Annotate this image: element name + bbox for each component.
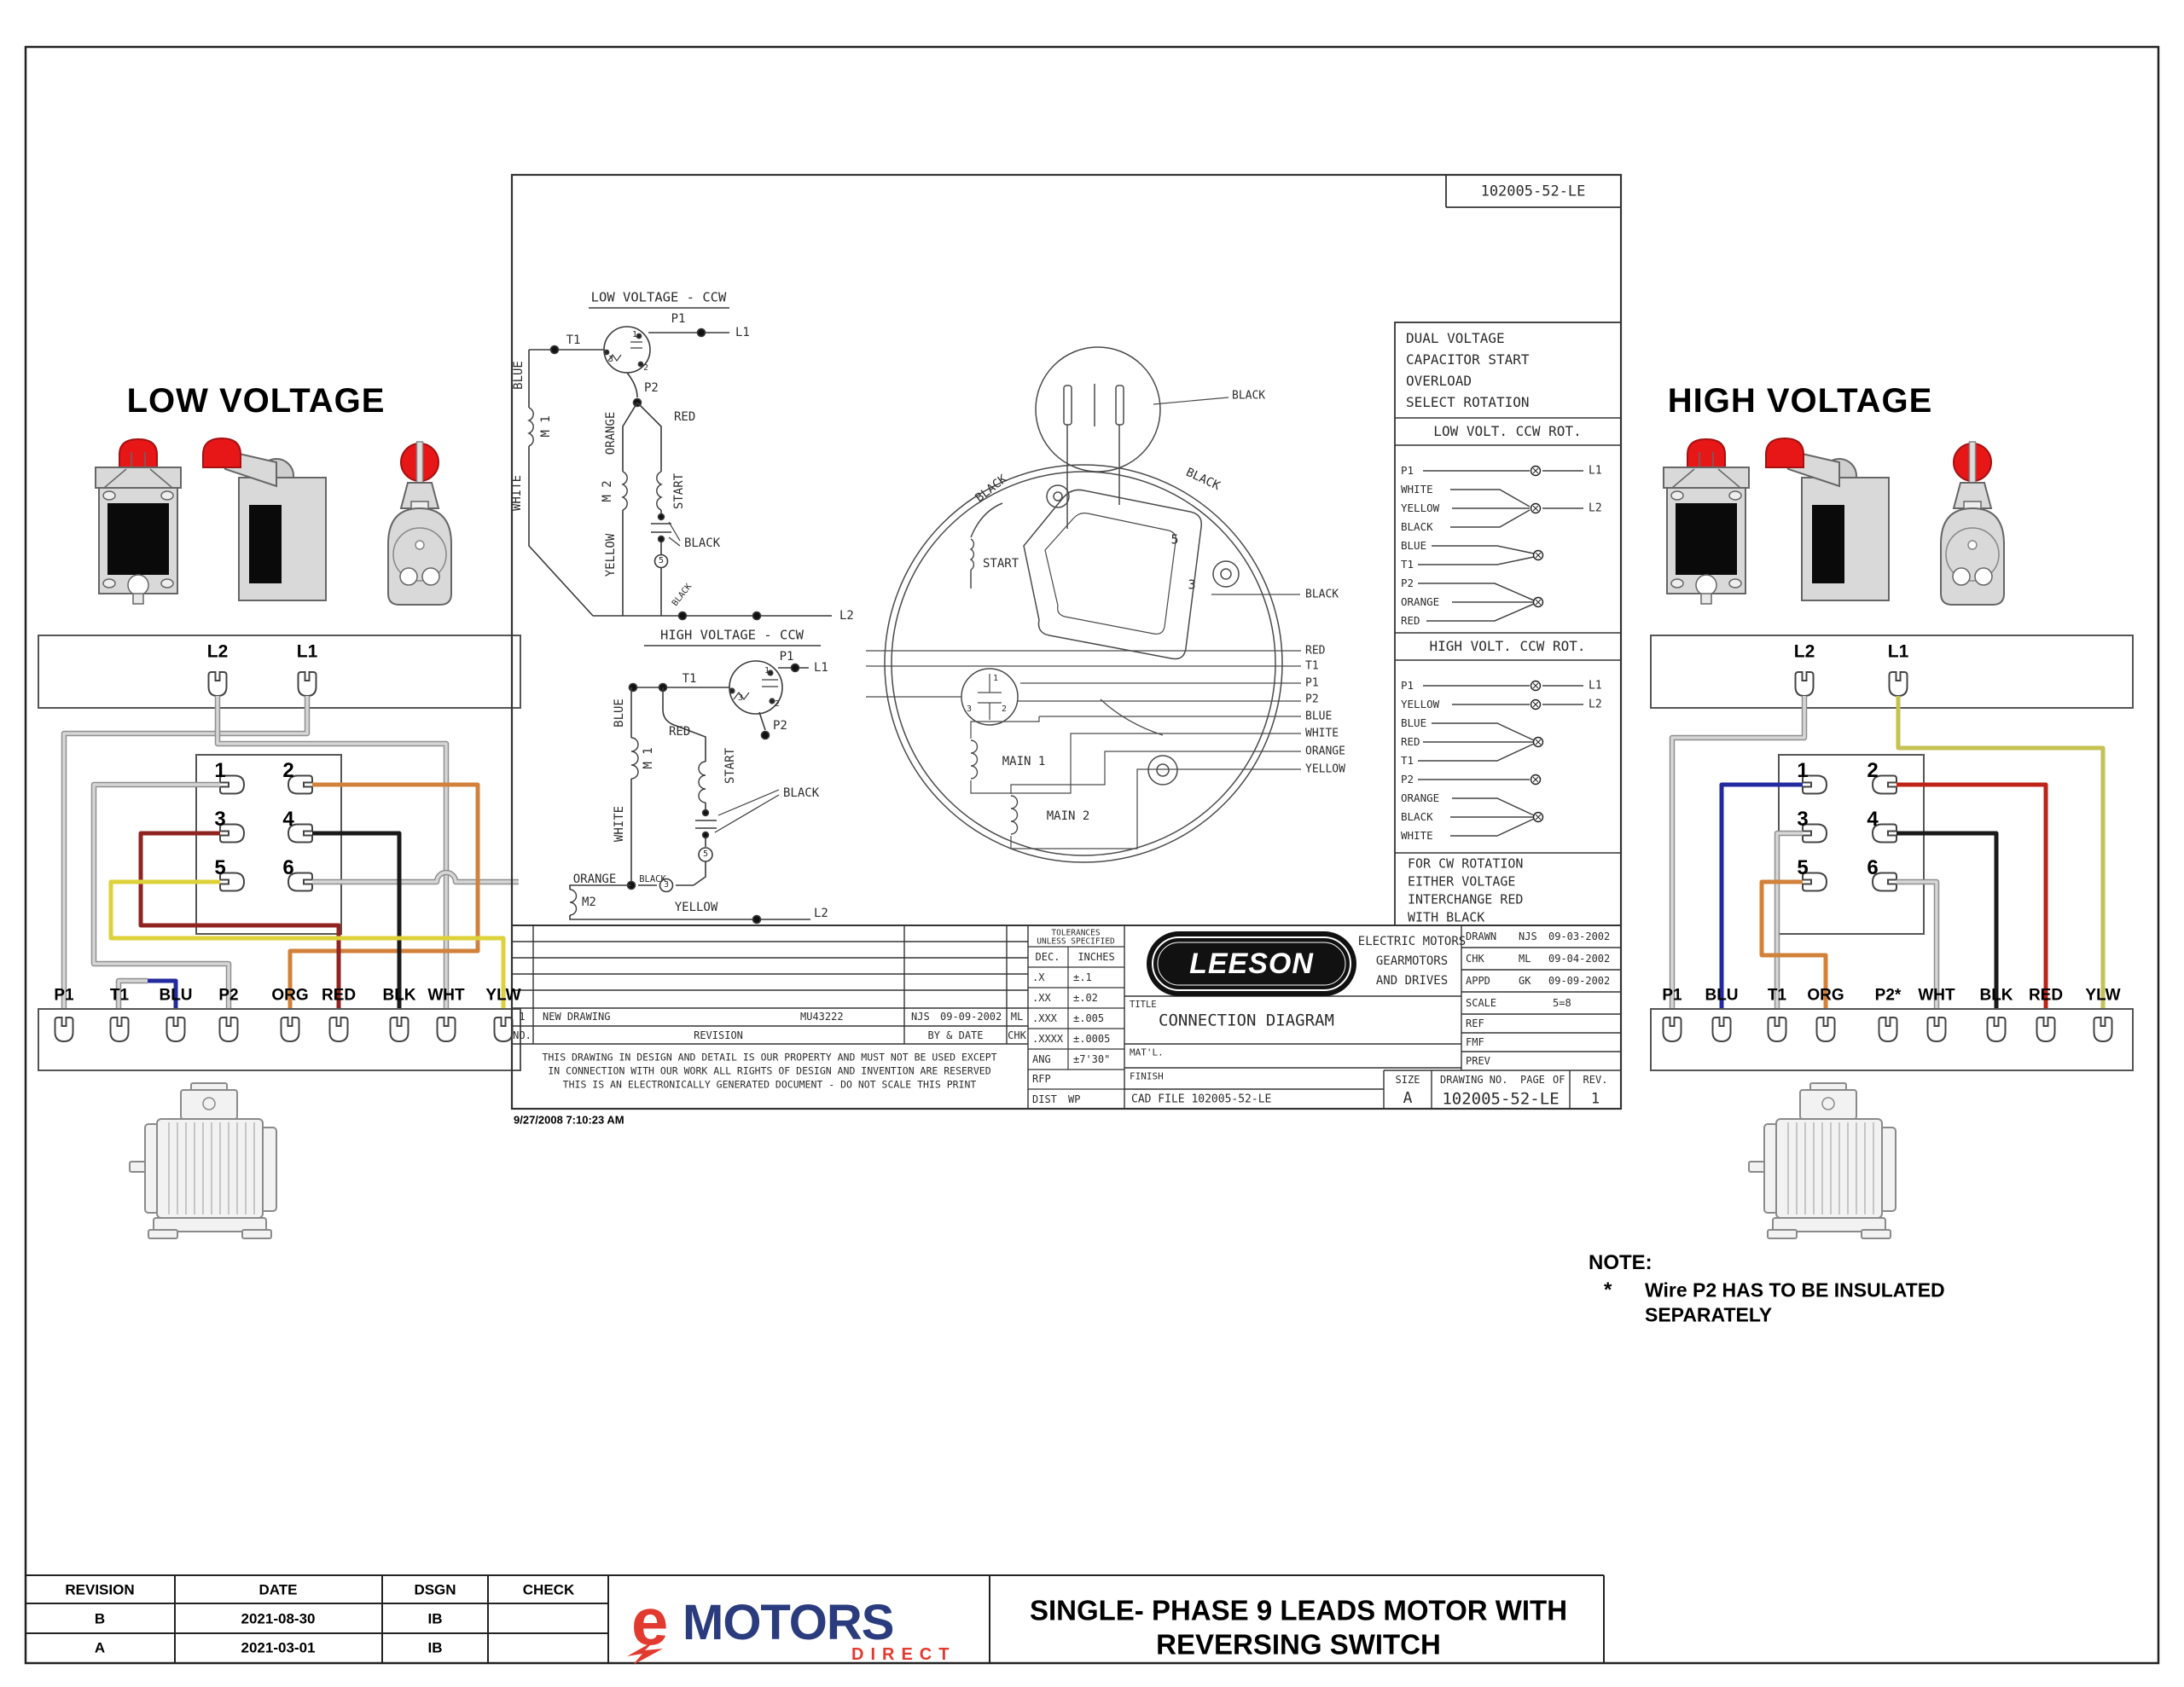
info-line-4: SELECT ROTATION — [1406, 396, 1530, 409]
right-sw-4: 4 — [1867, 809, 1878, 830]
appd-date: 09-09-2002 — [1548, 976, 1610, 986]
fmf-label: FMF — [1466, 1037, 1484, 1047]
sch-high-m2: M2 — [582, 896, 596, 908]
right-sw-1: 1 — [1797, 761, 1808, 781]
of-label: OF — [1553, 1075, 1565, 1085]
drawing-title-line1: SINGLE- PHASE 9 LEADS MOTOR WITH — [1030, 1597, 1567, 1625]
cap-n3: 3 — [967, 705, 972, 714]
tol-xx-label: .XX — [1032, 993, 1051, 1003]
tol-inches: INCHES — [1077, 952, 1114, 962]
ftr-hdr-revision: REVISION — [65, 1583, 134, 1597]
high-lead-5: P2 — [1401, 774, 1414, 786]
right-sw-6: 6 — [1867, 858, 1878, 878]
high-voltage-wiring — [1651, 635, 2133, 1238]
revrow-no: 1 — [519, 1012, 525, 1022]
low-lead-2: YELLOW — [1401, 503, 1439, 514]
title-label: TITLE — [1130, 1000, 1157, 1010]
left-sw-3: 3 — [214, 809, 225, 830]
sch-high-l1: L1 — [814, 662, 828, 674]
matl-label: MAT'L. — [1130, 1048, 1164, 1058]
sch-low-n5: 5 — [659, 557, 664, 565]
circle-main2: MAIN 2 — [1047, 810, 1090, 822]
prev-label: PREV — [1466, 1056, 1490, 1066]
left-lead-ylw: YLW — [485, 988, 520, 1004]
low-lead-3: BLACK — [1401, 522, 1433, 533]
sch-high-title: HIGH VOLTAGE - CCW — [660, 629, 804, 642]
sch-high-black-small: BLACK — [639, 875, 666, 884]
sch-low-start: START — [673, 473, 685, 509]
right-sw-5: 5 — [1797, 858, 1808, 878]
info-line-1: DUAL VOLTAGE — [1406, 332, 1505, 345]
sch-low-l1: L1 — [735, 327, 750, 339]
leeson-logo-text: LEESON — [1189, 949, 1314, 978]
left-l1-label: L1 — [297, 643, 318, 661]
low-lead-1: WHITE — [1401, 484, 1433, 496]
brand-line-2: GEARMOTORS — [1376, 955, 1448, 967]
right-lead-org: ORG — [1807, 988, 1844, 1004]
chk-label: CHK — [1466, 954, 1484, 964]
cw-note-1: FOR CW ROTATION — [1408, 858, 1523, 871]
cap-n2: 2 — [1002, 705, 1007, 714]
high-l2: L2 — [1589, 699, 1602, 710]
high-rot-header: HIGH VOLT. CCW ROT. — [1429, 640, 1585, 653]
cap-n1: 1 — [993, 675, 998, 683]
sch-high-black: BLACK — [783, 787, 819, 799]
left-sw-2: 2 — [282, 761, 293, 781]
sch-low-red: RED — [674, 411, 695, 423]
sch-high-n2: 2 — [775, 700, 780, 709]
sch-low-l2: L2 — [839, 610, 854, 622]
sch-low-black: BLACK — [684, 537, 720, 549]
right-lead-red: RED — [2029, 988, 2063, 1004]
sch-low-white: WHITE — [511, 475, 523, 511]
revrow-date: 09-09-2002 — [940, 1012, 1002, 1022]
ftr-hdr-check: CHECK — [523, 1583, 574, 1597]
low-lead-4: BLUE — [1401, 541, 1426, 552]
circle-n5: 5 — [1170, 534, 1178, 547]
left-lead-blu: BLU — [159, 988, 192, 1004]
stack-blue: BLUE — [1305, 711, 1332, 722]
ref-label: REF — [1466, 1018, 1484, 1029]
sch-high-n3b: 3 — [664, 881, 669, 890]
tol-ang-value: ±7'30" — [1073, 1054, 1110, 1064]
right-lead-blk: BLK — [1979, 988, 2013, 1004]
high-voltage-switch-icons — [1664, 438, 2004, 605]
ftr-row1-dsgn: IB — [428, 1612, 443, 1626]
revhdr-chk: CHK — [1008, 1030, 1026, 1041]
tol-xxxx-value: ±.0005 — [1073, 1034, 1110, 1044]
revrow-by: NJS — [911, 1012, 930, 1022]
left-sw-1: 1 — [214, 761, 225, 781]
wiring-diagram-page: LOW VOLTAGE HIGH VOLTAGE L2 L1 1 2 3 4 5… — [0, 0, 2184, 1687]
print-timestamp: 9/27/2008 7:10:23 AM — [514, 1115, 624, 1126]
left-sw-6: 6 — [282, 858, 293, 878]
brand-direct: DIRECT — [851, 1646, 955, 1663]
high-lead-2: BLUE — [1401, 718, 1426, 729]
note-heading: NOTE: — [1589, 1253, 1653, 1273]
left-lead-blk: BLK — [382, 988, 415, 1004]
circle-main1: MAIN 1 — [1002, 756, 1046, 768]
low-l2: L2 — [1589, 503, 1602, 514]
sch-high-white: WHITE — [613, 806, 625, 842]
low-lead-5: T1 — [1401, 559, 1414, 571]
brand-motors: MOTORS — [682, 1598, 894, 1648]
high-lead-3: RED — [1401, 737, 1420, 748]
circle-black-top: BLACK — [1232, 391, 1265, 402]
sch-low-n1: 1 — [632, 331, 637, 339]
stack-p2: P2 — [1305, 694, 1319, 705]
note-line1: Wire P2 HAS TO BE INSULATED — [1645, 1281, 1945, 1301]
high-l1: L1 — [1589, 681, 1602, 692]
left-lead-red: RED — [322, 988, 356, 1004]
low-lead-6: P2 — [1401, 578, 1414, 589]
revrow-code: MU43222 — [800, 1012, 844, 1022]
dwg-label: DRAWING NO. — [1440, 1075, 1507, 1085]
high-lead-4: T1 — [1401, 756, 1414, 767]
tol-x-label: .X — [1032, 972, 1044, 983]
right-lead-wht: WHT — [1918, 988, 1955, 1004]
chk-by: ML — [1519, 954, 1531, 964]
drawing-title-line2: REVERSING SWITCH — [1156, 1631, 1441, 1659]
left-lead-p2: P2 — [218, 988, 238, 1004]
sch-high-red: RED — [669, 726, 690, 738]
lightning-bolt-icon — [627, 1641, 666, 1667]
low-lead-8: RED — [1401, 616, 1420, 627]
cad-file: CAD FILE 102005-52-LE — [1131, 1094, 1271, 1105]
high-lead-1: YELLOW — [1401, 699, 1439, 710]
appd-label: APPD — [1466, 976, 1490, 986]
revhdr-bydate: BY & DATE — [927, 1030, 983, 1041]
sch-high-blue: BLUE — [613, 699, 625, 728]
right-lead-ylw: YLW — [2085, 988, 2120, 1004]
note-line2: SEPARATELY — [1645, 1306, 1772, 1325]
rev-label: REV. — [1583, 1075, 1608, 1085]
ftr-hdr-date: DATE — [258, 1583, 297, 1597]
high-lead-7: BLACK — [1401, 812, 1433, 823]
left-lead-t1: T1 — [110, 988, 129, 1004]
drawn-label: DRAWN — [1466, 931, 1496, 942]
tol-dec: DEC. — [1036, 952, 1060, 962]
tol-x-value: ±.1 — [1073, 972, 1092, 983]
right-lead-t1: T1 — [1768, 988, 1786, 1004]
left-lead-org: ORG — [271, 988, 308, 1004]
left-l2-label: L2 — [207, 643, 229, 661]
title-value: CONNECTION DIAGRAM — [1159, 1013, 1334, 1029]
sch-high-p1: P1 — [780, 651, 794, 663]
dist-value: WP — [1068, 1094, 1080, 1104]
tol-header-2: UNLESS SPECIFIED — [1037, 937, 1115, 946]
right-l1-label: L1 — [1888, 643, 1909, 661]
low-lead-7: ORANGE — [1401, 597, 1439, 608]
low-rot-header: LOW VOLT. CCW ROT. — [1433, 425, 1581, 438]
right-lead-p1: P1 — [1662, 988, 1682, 1004]
schematic-low-ccw — [529, 308, 832, 620]
low-voltage-switch-icons — [96, 438, 451, 605]
page-label: PAGE — [1520, 1075, 1545, 1085]
sch-high-t1: T1 — [682, 673, 697, 685]
left-lead-wht: WHT — [427, 988, 464, 1004]
revrow-chk: ML — [1011, 1012, 1023, 1022]
cw-note-3: INTERCHANGE RED — [1408, 894, 1523, 907]
doc-number: 102005-52-LE — [1481, 185, 1586, 200]
circle-n3: 3 — [1188, 579, 1195, 592]
brand-line-3: AND DRIVES — [1376, 975, 1448, 987]
right-l2-label: L2 — [1794, 643, 1815, 661]
stack-p1: P1 — [1305, 678, 1319, 689]
appd-by: GK — [1519, 976, 1531, 986]
dwg-number: 102005-52-LE — [1442, 1092, 1559, 1108]
rev-value: 1 — [1591, 1093, 1600, 1107]
disclaimer-1: THIS DRAWING IN DESIGN AND DETAIL IS OUR… — [542, 1052, 996, 1063]
info-line-2: CAPACITOR START — [1406, 353, 1530, 367]
ftr-row2-rev: A — [95, 1641, 105, 1655]
chk-date: 09-04-2002 — [1548, 954, 1610, 964]
sch-low-yellow: YELLOW — [605, 534, 617, 577]
left-sw-5: 5 — [214, 858, 225, 878]
brand-line-1: ELECTRIC MOTORS — [1358, 936, 1466, 948]
sch-high-orange: ORANGE — [573, 873, 617, 885]
sch-low-m1: M 1 — [540, 415, 552, 437]
tol-xxxx-label: .XXXX — [1032, 1034, 1063, 1044]
disclaimer-3: THIS IS AN ELECTRONICALLY GENERATED DOCU… — [563, 1080, 977, 1090]
left-lead-p1: P1 — [54, 988, 73, 1004]
rfp-label: RFP — [1032, 1074, 1051, 1084]
scale-value: 5=8 — [1553, 998, 1571, 1008]
sch-high-n1: 1 — [764, 667, 770, 675]
stack-white: WHITE — [1305, 728, 1339, 739]
sch-high-n5: 5 — [703, 850, 708, 859]
ftr-row2-dsgn: IB — [428, 1641, 443, 1655]
sch-low-blue: BLUE — [513, 361, 525, 390]
tol-xx-value: ±.02 — [1073, 993, 1098, 1003]
disclaimer-2: IN CONNECTION WITH OUR WORK ALL RIGHTS O… — [548, 1066, 990, 1076]
sch-low-title: LOW VOLTAGE - CCW — [591, 291, 727, 304]
sch-high-l2: L2 — [814, 907, 828, 919]
stack-orange: ORANGE — [1305, 746, 1345, 757]
low-l1: L1 — [1589, 466, 1602, 477]
note-star: * — [1604, 1280, 1612, 1301]
sch-high-n3: 3 — [738, 694, 743, 703]
sch-low-m2: M 2 — [601, 480, 613, 501]
right-sw-3: 3 — [1797, 809, 1808, 830]
stack-red: RED — [1305, 646, 1325, 657]
size-label: SIZE — [1396, 1075, 1420, 1085]
tol-xxx-value: ±.005 — [1073, 1013, 1104, 1023]
dist-label: DIST — [1032, 1094, 1057, 1104]
stack-yellow: YELLOW — [1305, 764, 1345, 775]
high-lead-6: ORANGE — [1401, 793, 1439, 804]
cw-note-4: WITH BLACK — [1408, 912, 1484, 925]
left-sw-4: 4 — [282, 809, 293, 830]
ftr-row1-date: 2021-08-30 — [241, 1612, 316, 1626]
revhdr-revision: REVISION — [694, 1030, 743, 1041]
circle-start: START — [983, 558, 1019, 570]
info-line-3: OVERLOAD — [1406, 374, 1472, 388]
sch-low-n3: 3 — [608, 356, 613, 364]
circle-black-right: BLACK — [1305, 589, 1339, 600]
scale-label: SCALE — [1466, 998, 1496, 1008]
sch-low-orange: ORANGE — [605, 412, 617, 455]
diagram-linework — [0, 0, 2184, 1687]
sch-high-yellow: YELLOW — [675, 901, 718, 913]
sch-low-p1: P1 — [671, 313, 686, 325]
ftr-row1-rev: B — [95, 1612, 105, 1626]
motor-circle-diagram — [866, 347, 1301, 862]
right-lead-p2: P2* — [1875, 988, 1902, 1004]
low-voltage-title: LOW VOLTAGE — [127, 384, 386, 418]
right-lead-blu: BLU — [1705, 988, 1738, 1004]
drawn-date: 09-03-2002 — [1548, 931, 1610, 942]
revhdr-no: NO. — [513, 1030, 531, 1041]
low-voltage-wiring — [38, 635, 520, 1238]
high-lead-8: WHITE — [1401, 831, 1433, 842]
drawn-by: NJS — [1519, 931, 1537, 942]
sch-high-m1: M 1 — [642, 747, 654, 768]
sch-low-n2: 2 — [643, 364, 648, 373]
sch-high-start: START — [724, 748, 736, 784]
high-voltage-title: HIGH VOLTAGE — [1668, 384, 1933, 418]
stack-t1: T1 — [1305, 661, 1319, 672]
right-sw-2: 2 — [1867, 761, 1878, 781]
low-lead-0: P1 — [1401, 466, 1414, 477]
high-lead-0: P1 — [1401, 681, 1414, 692]
size-value: A — [1403, 1091, 1413, 1106]
sch-low-p2: P2 — [644, 382, 659, 394]
tol-xxx-label: .XXX — [1032, 1013, 1057, 1023]
cw-note-2: EITHER VOLTAGE — [1408, 876, 1515, 889]
finish-label: FINISH — [1130, 1072, 1164, 1081]
ftr-row2-date: 2021-03-01 — [241, 1641, 316, 1655]
ftr-hdr-dsgn: DSGN — [414, 1583, 456, 1597]
sch-high-p2: P2 — [773, 720, 787, 732]
sch-low-t1: T1 — [566, 334, 581, 346]
tol-ang-label: ANG — [1032, 1054, 1051, 1064]
revrow-desc: NEW DRAWING — [543, 1012, 610, 1022]
